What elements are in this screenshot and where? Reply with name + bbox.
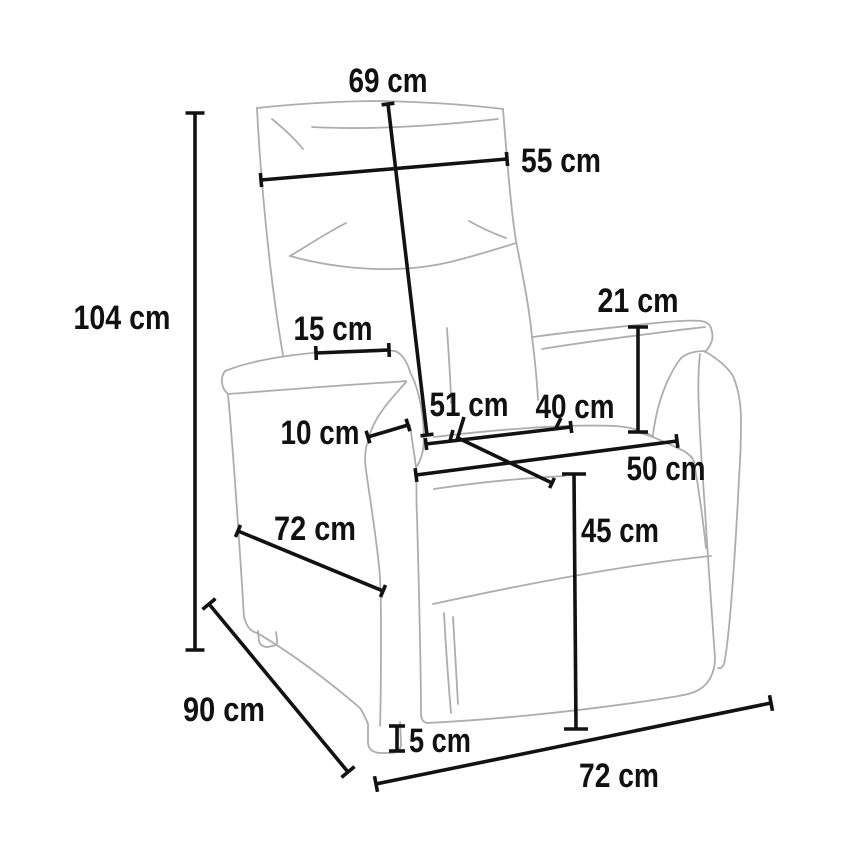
svg-text:10 cm: 10 cm: [281, 414, 360, 452]
svg-text:55 cm: 55 cm: [521, 142, 601, 180]
svg-text:50 cm: 50 cm: [627, 450, 706, 488]
svg-text:5 cm: 5 cm: [409, 722, 471, 760]
svg-text:40 cm: 40 cm: [536, 388, 615, 426]
svg-text:69 cm: 69 cm: [349, 62, 428, 100]
svg-text:104 cm: 104 cm: [74, 299, 171, 337]
svg-text:72 cm: 72 cm: [274, 510, 356, 548]
svg-text:45 cm: 45 cm: [581, 512, 659, 550]
svg-text:90 cm: 90 cm: [183, 691, 265, 729]
svg-text:51 cm: 51 cm: [430, 386, 509, 424]
svg-text:21 cm: 21 cm: [598, 282, 679, 320]
svg-text:15 cm: 15 cm: [294, 310, 373, 348]
svg-text:72 cm: 72 cm: [579, 757, 659, 795]
